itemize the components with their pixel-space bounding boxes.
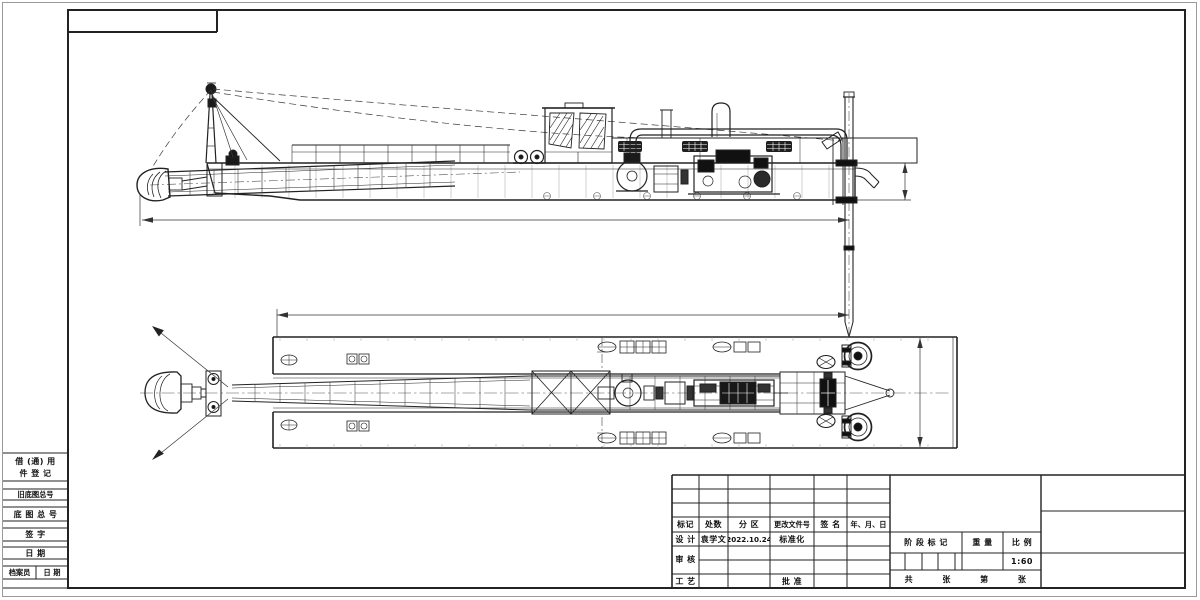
spud-clamp [836,160,857,166]
cutter-head-plan [145,371,221,416]
spud-keeper-upper [817,343,872,370]
approve-label: 批 准 [770,574,814,588]
revision-header-zone: 分 区 [728,517,770,532]
louver-panel [618,141,792,152]
exhaust-stack [660,103,730,138]
margin-date-label: 日 期 [3,547,68,559]
drawing-canvas [0,0,1200,600]
midship-marker [597,337,607,448]
spud-clamp [836,197,857,203]
hook-block [208,99,216,107]
sheet-page-unit: 张 [1018,574,1027,585]
check-label: 审 核 [672,551,699,567]
ladder-plan [232,371,780,414]
process-label: 工 艺 [672,574,699,588]
revision-header-signature: 签 名 [814,517,847,532]
dimension-depth [857,163,911,200]
dimension-plan-width [917,338,922,447]
revision-header-count: 处数 [699,517,728,532]
derrick-mast [206,83,280,163]
dredge-pump-side [616,153,648,191]
ladder-side [150,150,520,196]
margin-borrow-label-2: 件 登 记 [3,467,68,479]
cabin-window [579,113,606,149]
dimension-length [140,194,849,226]
scale-value: 1:60 [1003,553,1041,570]
plan-view [140,309,957,460]
revision-header-mark: 标记 [672,517,699,532]
standardization-label: 标准化 [770,532,814,546]
sheet-total-unit: 张 [942,574,951,585]
sheet-page-label: 第 [980,574,989,585]
sheet-total-label: 共 [905,574,914,585]
design-date: 2022.10.24 [728,532,770,546]
stage-mark-label: 阶 段 标 记 [890,532,962,553]
designer-name: 袁学文 [699,532,728,546]
spud-keeper-lower [817,414,872,441]
weight-label: 重 量 [962,532,1003,553]
revision-header-date: 年、月、日 [847,517,890,532]
pump-plan [598,374,641,406]
margin-archivist-date-label: 日 期 [36,566,68,579]
drawing-sheet: 借 (通) 用 件 登 记 旧底图总号 底 图 总 号 签 字 日 期 档案员 … [0,0,1200,600]
design-label: 设 计 [672,532,699,546]
drawing-frame [3,3,1197,597]
margin-archivist-label: 档案员 [3,566,36,579]
sheet-count-row: 共 张 第 张 [890,570,1041,588]
ladder-centerline [150,172,520,185]
side-view [137,83,917,339]
dimension-plan-length [277,309,849,337]
stern-discharge [855,168,879,188]
foredeck-railing [292,145,510,163]
margin-borrow-label-1: 借 (通) 用 [3,455,68,467]
margin-signature-label: 签 字 [3,528,68,541]
deck-fairleads [513,151,545,164]
margin-base-no-label: 底 图 总 号 [3,507,68,521]
margin-old-base-no-label: 旧底图总号 [3,489,68,500]
engine-side [654,150,780,194]
scale-label: 比 例 [1003,532,1041,553]
revision-header-change-doc: 更改文件号 [770,517,814,532]
